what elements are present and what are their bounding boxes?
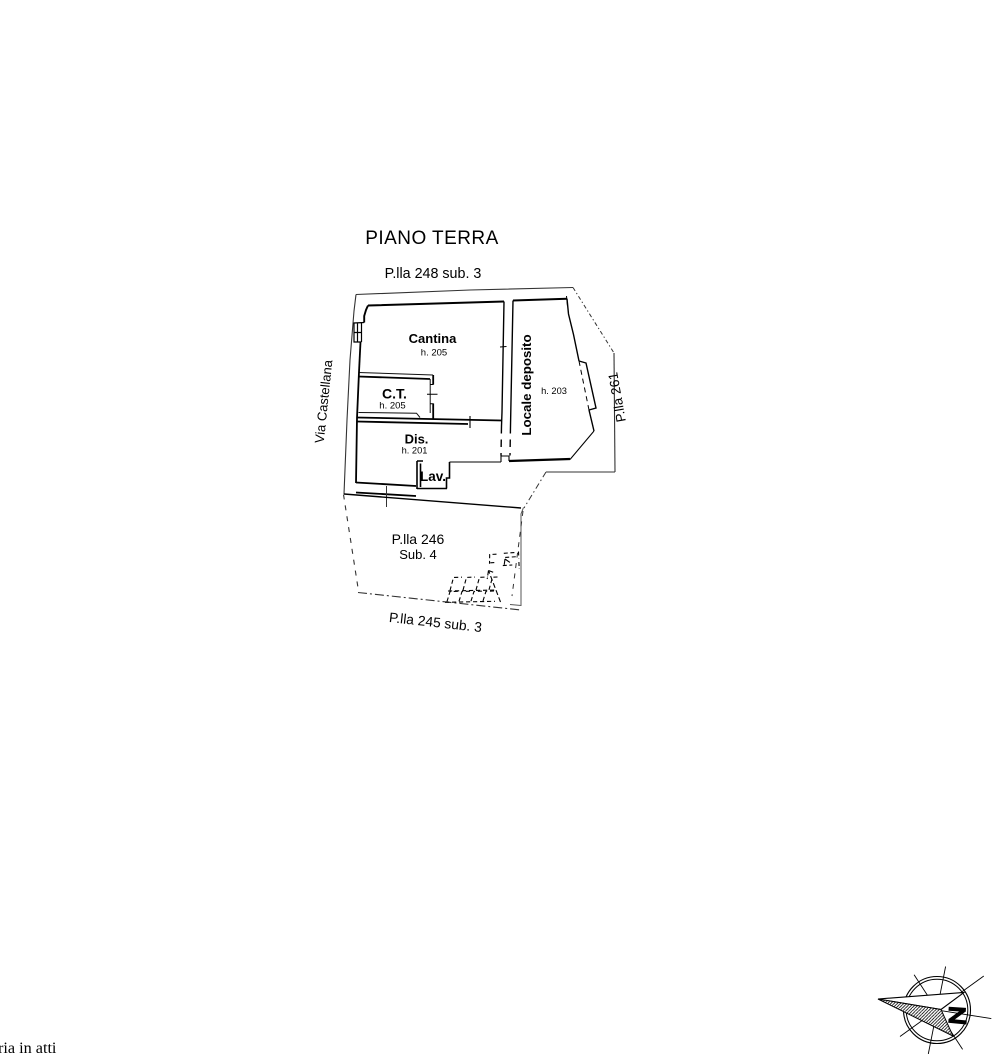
svg-text:P.lla 248 sub. 3: P.lla 248 sub. 3 xyxy=(385,266,482,282)
svg-text:Sub. 4: Sub. 4 xyxy=(399,547,437,562)
svg-text:Cantina: Cantina xyxy=(409,331,457,346)
svg-text:P.lla 246: P.lla 246 xyxy=(392,531,445,547)
svg-text:Dis.: Dis. xyxy=(405,432,429,447)
svg-text:P.lla 245 sub. 3: P.lla 245 sub. 3 xyxy=(388,610,483,635)
svg-text:PIANO TERRA: PIANO TERRA xyxy=(365,228,498,249)
svg-text:ria in atti: ria in atti xyxy=(0,1039,57,1054)
svg-text:h. 203: h. 203 xyxy=(541,386,567,396)
svg-text:Lav.: Lav. xyxy=(420,469,446,484)
svg-text:Via Castellana: Via Castellana xyxy=(312,358,336,443)
svg-text:P.lla 261: P.lla 261 xyxy=(605,371,629,423)
svg-text:h. 205: h. 205 xyxy=(421,348,447,359)
svg-text:h. 201: h. 201 xyxy=(402,446,428,456)
svg-text:C.T.: C.T. xyxy=(382,386,407,402)
svg-text:Locale deposito: Locale deposito xyxy=(519,334,534,435)
svg-text:h. 205: h. 205 xyxy=(379,401,405,412)
